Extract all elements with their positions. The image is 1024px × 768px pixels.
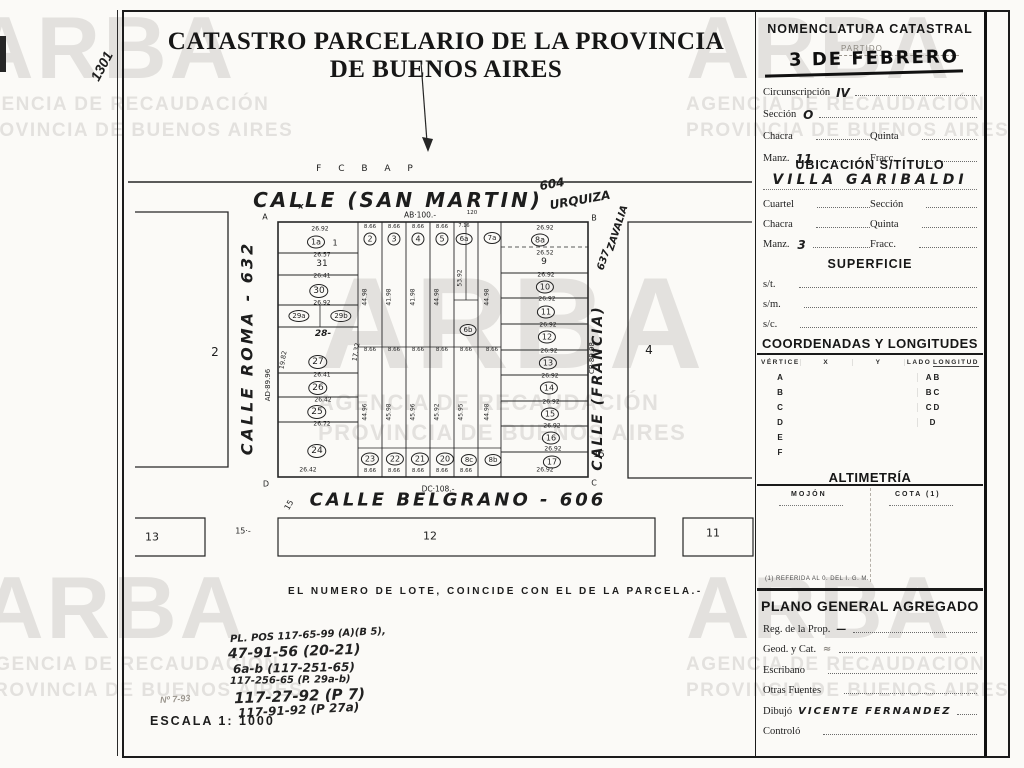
coordenadas-cell: A	[761, 373, 801, 382]
map-label: 26.92	[542, 399, 559, 406]
map-label: CALLE ROMA - 632	[238, 241, 257, 455]
scale-label: ESCALA 1: 1000	[150, 714, 275, 728]
form-row: Escribano	[757, 657, 983, 678]
map-label: 8.66	[436, 347, 448, 353]
column-header: VÉRTICE	[761, 359, 800, 366]
map-label: 26.52	[536, 250, 553, 257]
column-header: Y	[852, 359, 904, 366]
map-label: 8.66	[460, 468, 472, 474]
field-leader	[957, 714, 977, 715]
map-label: 26.72	[313, 421, 330, 428]
lot-note: EL NUMERO DE LOTE, COINCIDE CON EL DE LA…	[288, 586, 703, 597]
lot-number: 22	[386, 453, 404, 466]
coordenadas-row: CCD	[757, 400, 983, 415]
map-label: 8.66	[436, 468, 448, 474]
map-label: 26.92	[541, 373, 558, 380]
map-label: 8.66	[460, 347, 472, 353]
lot-number: 29a	[288, 310, 309, 322]
map-label: 120	[467, 210, 478, 216]
coordenadas-row: F	[757, 445, 983, 460]
map-label: 41.98	[410, 288, 417, 305]
form-field: Chacra	[763, 131, 870, 142]
map-label: 44.98	[484, 288, 491, 305]
map-label: 8.66	[412, 224, 424, 230]
column-header: LADO	[904, 359, 933, 366]
lot-number: 14	[540, 382, 558, 395]
map-label: AD·89.96	[264, 369, 272, 401]
coordenadas-cell: D	[917, 418, 949, 427]
form-row: s/c.	[757, 312, 983, 332]
map-label: C	[591, 479, 597, 488]
field-value: O	[802, 110, 814, 120]
partido-stamp: 3 DE FEBRERO	[761, 46, 987, 72]
map-label: 7.16	[458, 223, 469, 229]
form-row: SecciónO	[757, 100, 983, 122]
field-label: Manz.	[763, 239, 790, 250]
form-row: s/t.	[757, 272, 983, 292]
lot-number: 2	[363, 233, 376, 246]
field-label: s/t.	[763, 279, 776, 290]
map-label: 26.92	[313, 300, 330, 307]
ubicacion-line	[763, 188, 977, 190]
lot-number: 15	[541, 408, 559, 421]
map-label: 26.42	[314, 397, 331, 404]
field-leader	[819, 117, 977, 118]
field-label: Circunscripción	[763, 87, 830, 98]
coordenadas-row: BBC	[757, 385, 983, 400]
map-label: AB·100.-	[404, 211, 436, 220]
form-row: DibujóVICENTE FERNANDEZ	[757, 698, 983, 719]
map-label: CALLE (SAN MARTIN)	[253, 188, 543, 212]
map-label: 8.66	[412, 347, 424, 353]
coordenadas-table: VÉRTICEXYLADOLONGITUDAABBBCCCDDDEF	[757, 355, 983, 460]
map-label: x	[298, 202, 303, 211]
map-label: 15	[593, 450, 604, 460]
field-leader	[817, 207, 870, 208]
form-field: Cuartel	[763, 199, 870, 210]
map-label: DC·108.-	[422, 485, 455, 494]
coordenadas-cell: F	[761, 448, 801, 457]
form-row: Controló	[757, 719, 983, 740]
coordenadas-title: COORDENADAS Y LONGITUDES	[757, 336, 983, 355]
map-label: 26.92	[543, 423, 560, 430]
field-label: Chacra	[763, 131, 793, 142]
map-label: B	[591, 214, 597, 223]
map-label: 26.57	[313, 252, 330, 259]
field-label: Reg. de la Prop.	[763, 624, 830, 635]
map-label: 44.98	[434, 288, 441, 305]
coordenadas-row: E	[757, 430, 983, 445]
coordenadas-cell: AB	[917, 373, 949, 382]
map-label: CALLE (FRANCIA)	[590, 305, 606, 470]
field-leader	[839, 652, 977, 653]
map-label: 8.66	[486, 347, 498, 353]
form-field: Fracc.	[870, 239, 977, 250]
lot-number: 3	[387, 233, 400, 246]
form-field: Manz.3	[763, 239, 870, 250]
form-field: Quinta	[870, 131, 977, 142]
cota-header: COTA (1)	[895, 491, 941, 498]
field-label: Quinta	[870, 131, 899, 142]
map-label: 26.92	[536, 225, 553, 232]
field-value: IV	[836, 88, 850, 98]
field-leader	[813, 247, 870, 248]
lot-number: 21	[411, 453, 429, 466]
map-label: 44.98	[362, 288, 369, 305]
column-header: LONGITUD	[933, 359, 979, 367]
map-label: 26.92	[538, 296, 555, 303]
lot-number: 8a	[531, 234, 549, 247]
field-leader	[844, 693, 977, 694]
column-header: X	[800, 359, 852, 366]
form-row: CuartelSección	[757, 192, 983, 212]
nomenclatura-title: NOMENCLATURA CATASTRAL	[757, 22, 983, 36]
field-label: Cuartel	[763, 199, 794, 210]
map-label: 45.98	[386, 403, 393, 420]
field-leader	[926, 207, 977, 208]
map-label: 13	[145, 531, 159, 544]
map-label: 8.66	[388, 468, 400, 474]
nomenclatura-rows: CircunscripciónIVSecciónOChacraQuintaMan…	[757, 78, 983, 166]
lot-number: 6a	[456, 233, 473, 245]
form-panel: NOMENCLATURA CATASTRAL PARTIDO 3 DE FEBR…	[757, 10, 983, 756]
field-value: —	[836, 625, 848, 635]
lot-number: 6b	[460, 324, 477, 336]
field-label: Sección	[870, 199, 903, 210]
map-label: 31	[316, 259, 327, 269]
form-field: Controló	[763, 726, 977, 737]
field-label: Geod. y Cat.	[763, 644, 816, 655]
field-label: Otras Fuentes	[763, 685, 821, 696]
cadastral-sheet: { "page": { "sheet_number": "1301", "tit…	[0, 0, 1024, 768]
map-label: CB·89.98	[588, 342, 596, 374]
plano-rule	[757, 588, 983, 591]
map-label: 44.96	[362, 403, 369, 420]
field-value: 3	[796, 240, 808, 250]
altimetria-divider	[870, 488, 871, 582]
form-field: s/c.	[763, 319, 977, 330]
form-field: s/m.	[763, 299, 977, 310]
form-field: Chacra	[763, 219, 870, 230]
form-row: Geod. y Cat.≈	[757, 637, 983, 658]
field-value: VICENTE FERNANDEZ	[798, 707, 951, 717]
form-row: Manz.3Fracc.	[757, 232, 983, 252]
form-field: DibujóVICENTE FERNANDEZ	[763, 706, 977, 717]
field-leader	[828, 673, 977, 674]
field-label: Sección	[763, 109, 796, 120]
coordenadas-header-row: VÉRTICEXYLADOLONGITUD	[757, 355, 983, 370]
mojon-header: MOJÓN	[791, 491, 827, 498]
mojon-line	[779, 504, 843, 506]
map-label: 26.92	[539, 322, 556, 329]
map-label: 11	[706, 527, 720, 540]
field-leader	[816, 139, 870, 140]
form-row: CircunscripciónIV	[757, 78, 983, 100]
lot-number: 11	[537, 306, 555, 319]
map-label: 41.98	[386, 288, 393, 305]
lot-number: 17	[543, 456, 561, 469]
field-value: ≈	[822, 645, 834, 655]
form-field: Quinta	[870, 219, 977, 230]
altimetria-rule	[757, 484, 983, 486]
form-field: Geod. y Cat.≈	[763, 644, 977, 655]
plano-rows: Reg. de la Prop.—Geod. y Cat.≈EscribanoO…	[757, 616, 983, 739]
map-label: 12	[423, 530, 437, 543]
map-label: 2	[211, 345, 219, 359]
form-row: s/m.	[757, 292, 983, 312]
lot-number: 7a	[484, 232, 501, 244]
map-label: 4	[645, 343, 653, 357]
map-label: 26.42	[299, 467, 316, 474]
coordenadas-cell: E	[761, 433, 801, 442]
form-row: ChacraQuinta	[757, 122, 983, 144]
map-label: 26.92	[540, 348, 557, 355]
form-row: Reg. de la Prop.—	[757, 616, 983, 637]
form-field: Sección	[870, 199, 977, 210]
field-leader	[855, 95, 977, 96]
field-leader	[804, 307, 977, 308]
coordenadas-cell: CD	[917, 403, 949, 412]
map-label: 8.66	[364, 347, 376, 353]
field-label: Quinta	[870, 219, 899, 230]
form-field: s/t.	[763, 279, 977, 290]
lot-number: 8b	[485, 454, 502, 466]
map-label: D	[263, 480, 269, 489]
field-leader	[922, 227, 977, 228]
coordenadas-cell: C	[761, 403, 801, 412]
lot-number: 4	[411, 233, 424, 246]
map-label: 26.41	[313, 372, 330, 379]
form-field: Otras Fuentes	[763, 685, 977, 696]
lot-number: 5	[435, 233, 448, 246]
lot-number: 16	[542, 432, 560, 445]
form-field: Escribano	[763, 665, 977, 676]
map-label: 26.92	[537, 272, 554, 279]
form-field: CircunscripciónIV	[763, 87, 977, 98]
map-label: A	[262, 213, 267, 222]
superficie-title: SUPERFICIE	[757, 257, 983, 271]
field-label: s/m.	[763, 299, 781, 310]
cota-line	[889, 504, 953, 506]
coordenadas-cell: D	[761, 418, 801, 427]
map-label: 28-	[315, 329, 331, 339]
lot-number: 13	[539, 357, 557, 370]
railway-label: F C B A P	[316, 164, 420, 174]
map-label: 8.66	[364, 468, 376, 474]
field-label: Fracc.	[870, 239, 896, 250]
altimetria-title: ALTIMETRÍA	[757, 470, 983, 485]
field-label: Controló	[763, 726, 800, 737]
map-label: 44.98	[484, 403, 491, 420]
lot-number: 10	[536, 281, 554, 294]
coordenadas-row: DD	[757, 415, 983, 430]
map-label: 1	[332, 239, 337, 248]
field-leader	[922, 139, 977, 140]
altimetria-footnote: (1) REFERIDA AL 0. DEL I. G. M.	[765, 576, 869, 582]
map-label: 26.92	[544, 446, 561, 453]
map-label: 53.92	[457, 269, 464, 286]
lot-number: 23	[361, 453, 379, 466]
map-label: 26.92	[311, 226, 328, 233]
map-label: 8.66	[388, 347, 400, 353]
coordenadas-row: AAB	[757, 370, 983, 385]
field-label: Chacra	[763, 219, 793, 230]
map-label: 45.92	[434, 403, 441, 420]
form-field: SecciónO	[763, 109, 977, 120]
field-leader	[853, 632, 977, 633]
map-label: 26.41	[313, 273, 330, 280]
field-leader	[823, 734, 977, 735]
field-leader	[799, 287, 977, 288]
coordenadas-cell: B	[761, 388, 801, 397]
field-leader	[816, 227, 870, 228]
lot-number: 1a	[307, 236, 325, 249]
form-row: ChacraQuinta	[757, 212, 983, 232]
lot-number: 12	[538, 331, 556, 344]
coordenadas-cell: BC	[917, 388, 949, 397]
map-label: 45.96	[410, 403, 417, 420]
map-label: 8.66	[388, 224, 400, 230]
map-label: 15·-	[235, 527, 251, 536]
map-label: 9	[541, 257, 547, 267]
field-leader	[800, 327, 977, 328]
form-field: Reg. de la Prop.—	[763, 624, 977, 635]
plano-title: PLANO GENERAL AGREGADO	[757, 598, 983, 614]
map-label: 8.66	[364, 224, 376, 230]
map-label: 45.95	[458, 403, 465, 420]
field-label: Dibujó	[763, 706, 792, 717]
lot-number: 20	[436, 453, 454, 466]
field-label: s/c.	[763, 319, 777, 330]
map-label: CALLE BELGRANO - 606	[310, 490, 607, 511]
ubicacion-value: VILLA GARIBALDI	[757, 172, 983, 188]
form-row: Otras Fuentes	[757, 678, 983, 699]
map-label: 8.66	[436, 224, 448, 230]
superficie-rows: s/t.s/m.s/c.	[757, 272, 983, 332]
field-label: Escribano	[763, 665, 805, 676]
ubicacion-rows: CuartelSecciónChacraQuintaManz.3Fracc.	[757, 192, 983, 252]
field-leader	[919, 247, 977, 248]
faint-reference: Nº 7-93	[160, 693, 191, 705]
ubicacion-title: UBICACIÓN S/TÍTULO	[757, 158, 983, 172]
map-label: 8.66	[412, 468, 424, 474]
